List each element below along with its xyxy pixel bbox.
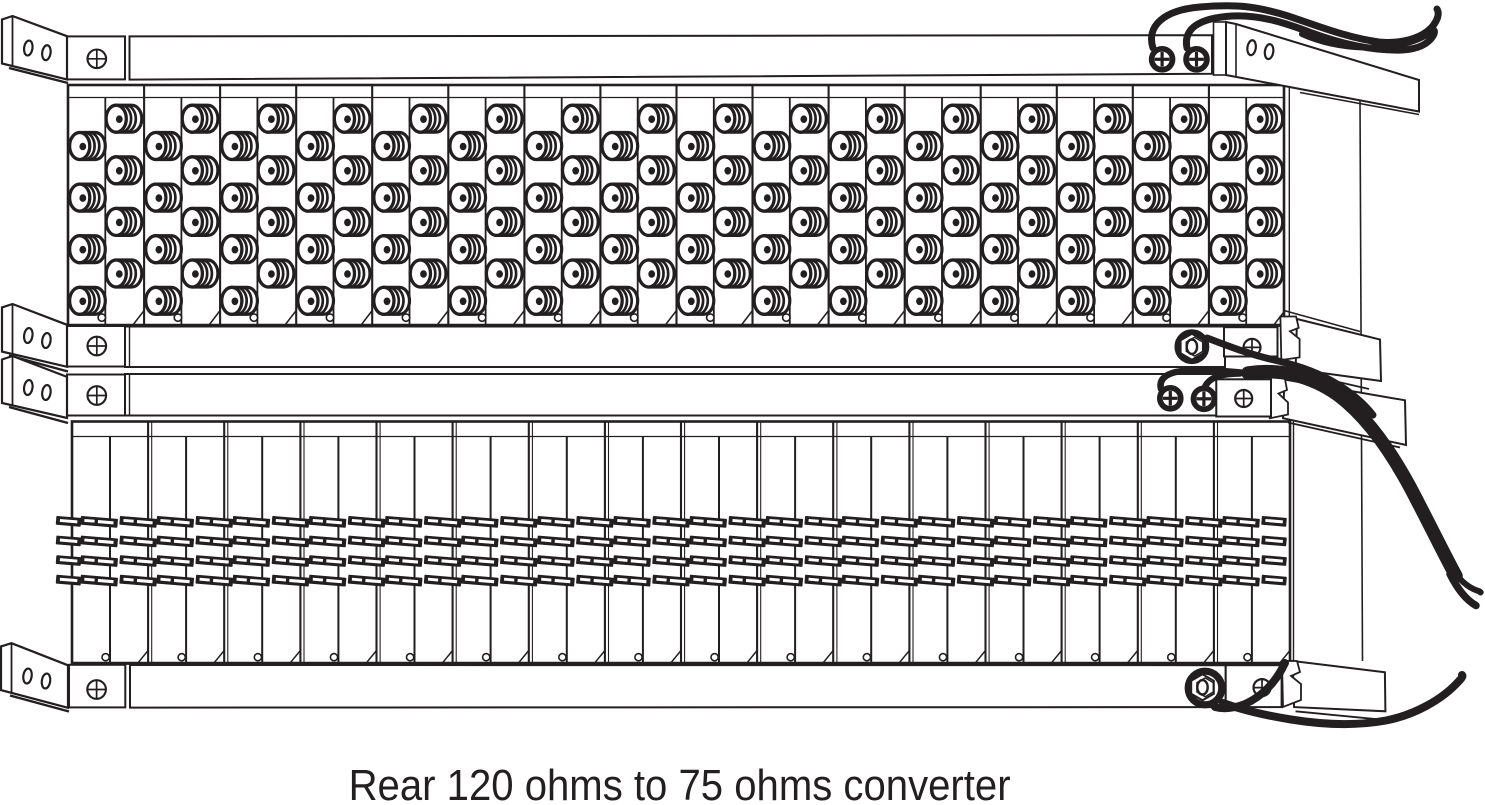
svg-text:Rear 120 ohms to 75 ohms conve: Rear 120 ohms to 75 ohms converter bbox=[349, 762, 1011, 805]
